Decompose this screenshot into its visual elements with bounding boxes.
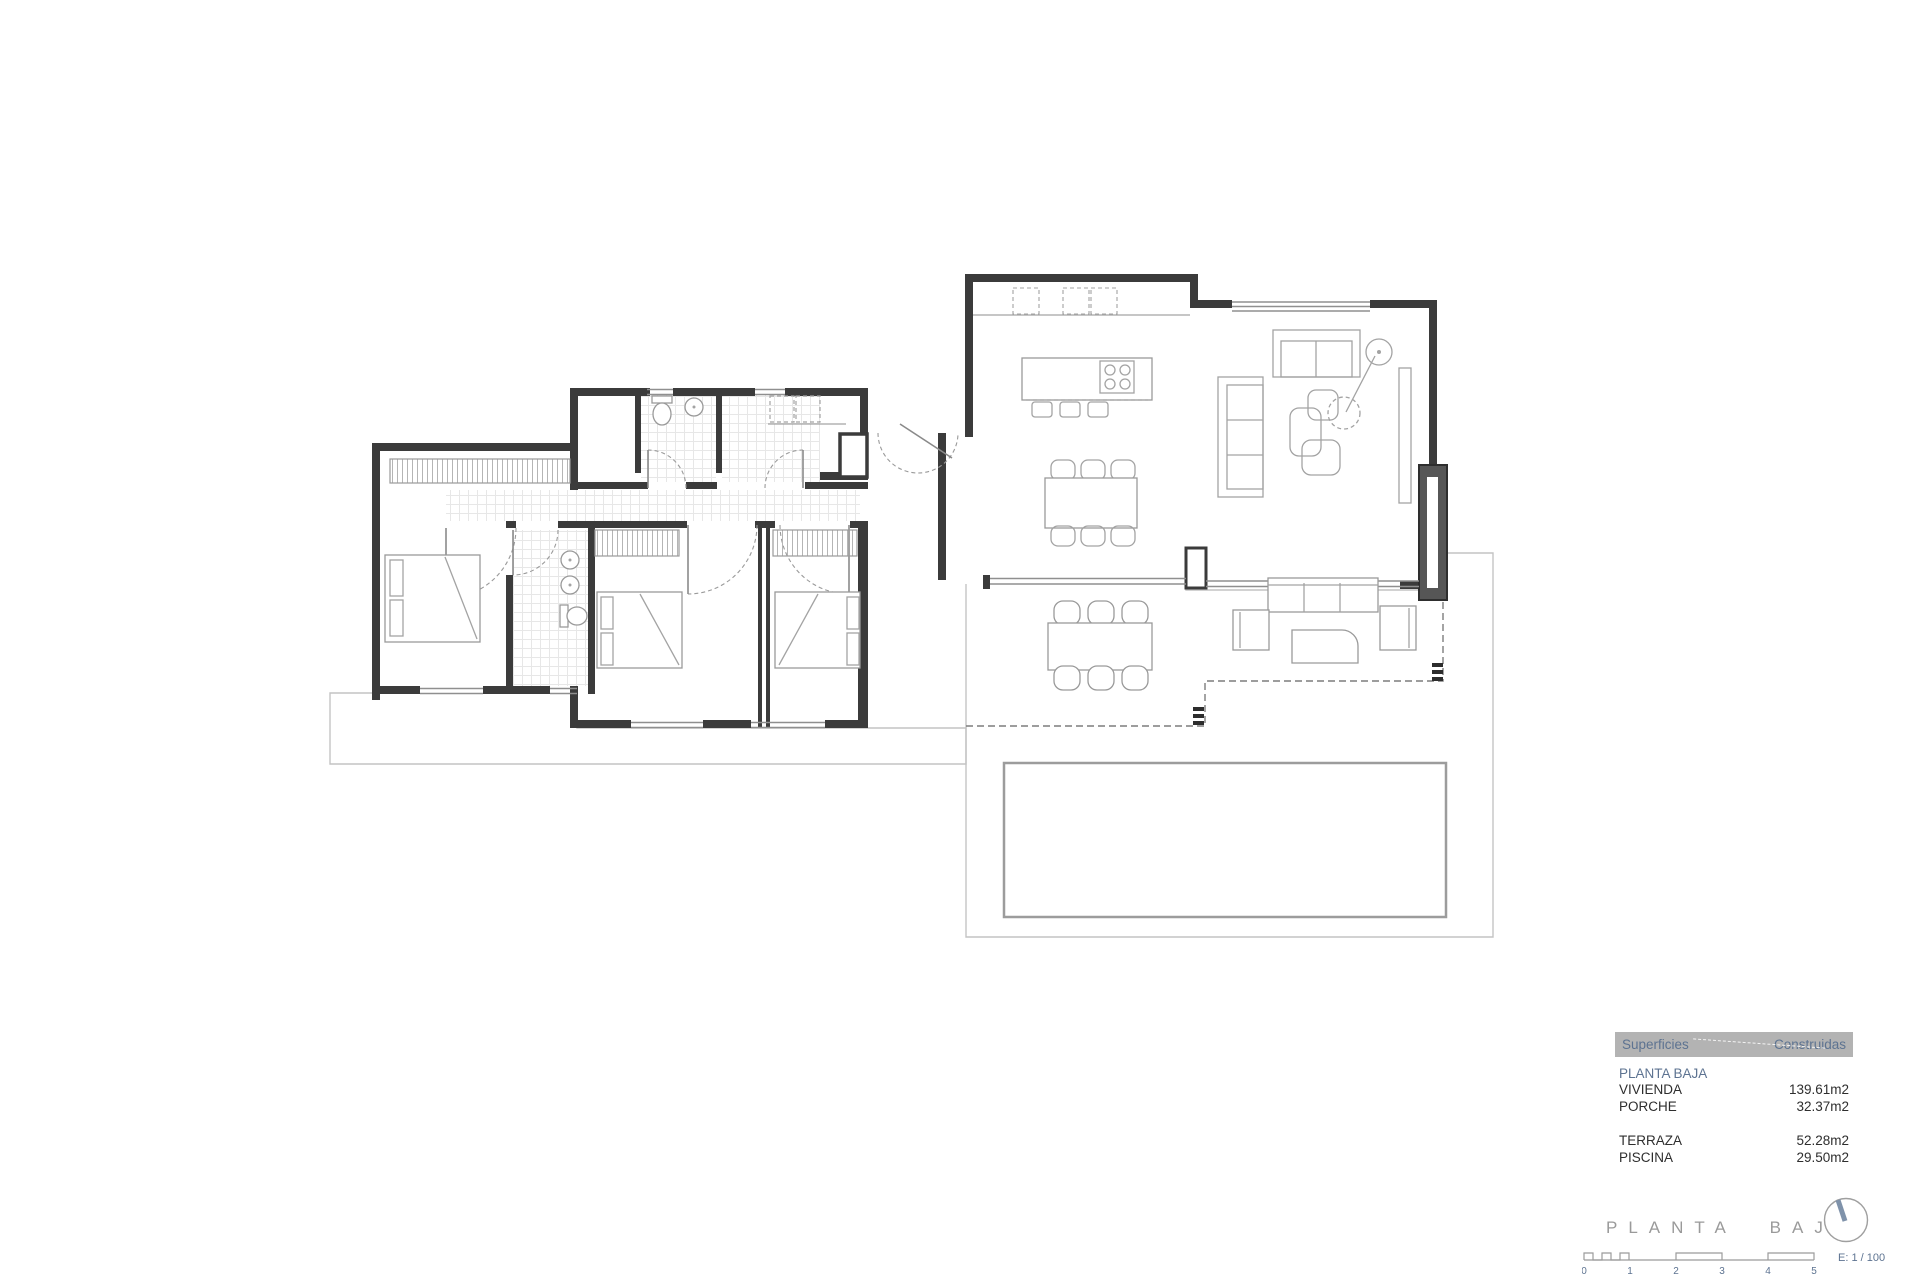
graphic-scale-bar: 0 1 2 3 4 5 (1582, 1246, 1842, 1280)
surface-row-terraza: TERRAZA 52.28m2 (1615, 1132, 1853, 1149)
scale-tick: 4 (1765, 1266, 1771, 1277)
scale-tick: 0 (1582, 1266, 1587, 1277)
bed-bedroom2 (597, 592, 682, 668)
sheet-title: PLANTA BAJA (1606, 1218, 1856, 1238)
scale-tick: 5 (1811, 1266, 1817, 1277)
surface-header-col1: Superficies (1622, 1037, 1689, 1052)
scale-ratio-label: E: 1 / 100 (1838, 1252, 1885, 1264)
floor-section-label: PLANTA BAJA (1615, 1066, 1853, 1081)
scale-tick: 3 (1719, 1266, 1725, 1277)
outdoor-lounge-set (1233, 578, 1416, 663)
porch-column (1186, 548, 1206, 588)
outdoor-dining-set (1048, 601, 1152, 690)
entry-closet (840, 434, 867, 477)
outdoor-armchair-left (1233, 610, 1269, 650)
wardrobe-bedroom2 (595, 530, 679, 556)
outdoor-table (1048, 623, 1152, 670)
surface-row-porche: PORCHE 32.37m2 (1615, 1098, 1853, 1115)
dining-table (1045, 478, 1137, 528)
scale-tick: 1 (1627, 1266, 1633, 1277)
surface-row-vivienda: VIVIENDA 139.61m2 (1615, 1081, 1853, 1098)
surface-area-table: Superficies Construidas PLANTA BAJA VIVI… (1615, 1032, 1853, 1166)
scale-tick: 2 (1673, 1266, 1679, 1277)
terrace-drain-right (1432, 663, 1443, 681)
outdoor-coffee-table (1292, 630, 1358, 663)
east-window-block (1419, 465, 1447, 600)
surface-row-piscina: PISCINA 29.50m2 (1615, 1149, 1853, 1166)
swimming-pool (1004, 763, 1446, 917)
bed-bedroom3 (775, 592, 860, 668)
outdoor-armchair-right (1380, 606, 1416, 650)
terrace-drain-left (1193, 707, 1204, 725)
bed-master (385, 555, 480, 642)
wardrobe-master (390, 459, 570, 483)
surface-table-header: Superficies Construidas (1615, 1032, 1853, 1057)
architect-logo (1820, 1194, 1872, 1246)
wardrobe-bedroom3 (773, 530, 857, 556)
